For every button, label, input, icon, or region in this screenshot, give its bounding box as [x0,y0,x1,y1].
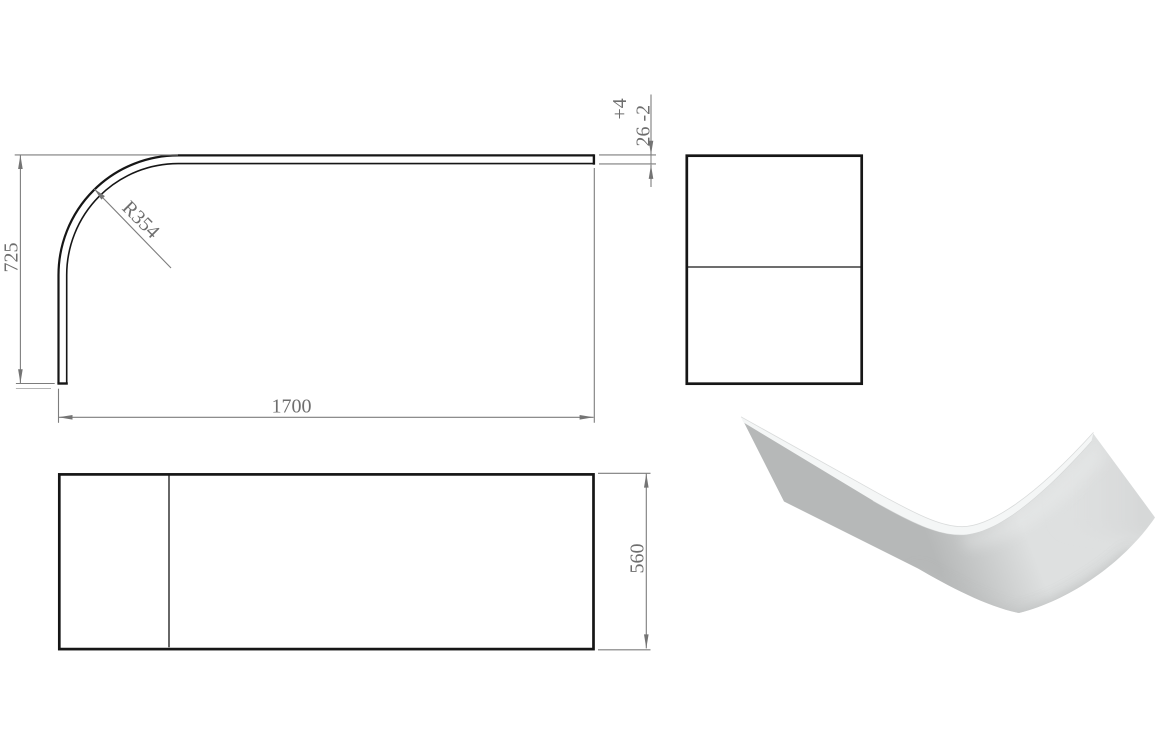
svg-text:1700: 1700 [272,396,312,418]
svg-text:725: 725 [1,243,23,273]
svg-text:560: 560 [627,544,649,574]
svg-text:+4: +4 [609,98,631,119]
svg-text:26 -2: 26 -2 [633,105,655,147]
